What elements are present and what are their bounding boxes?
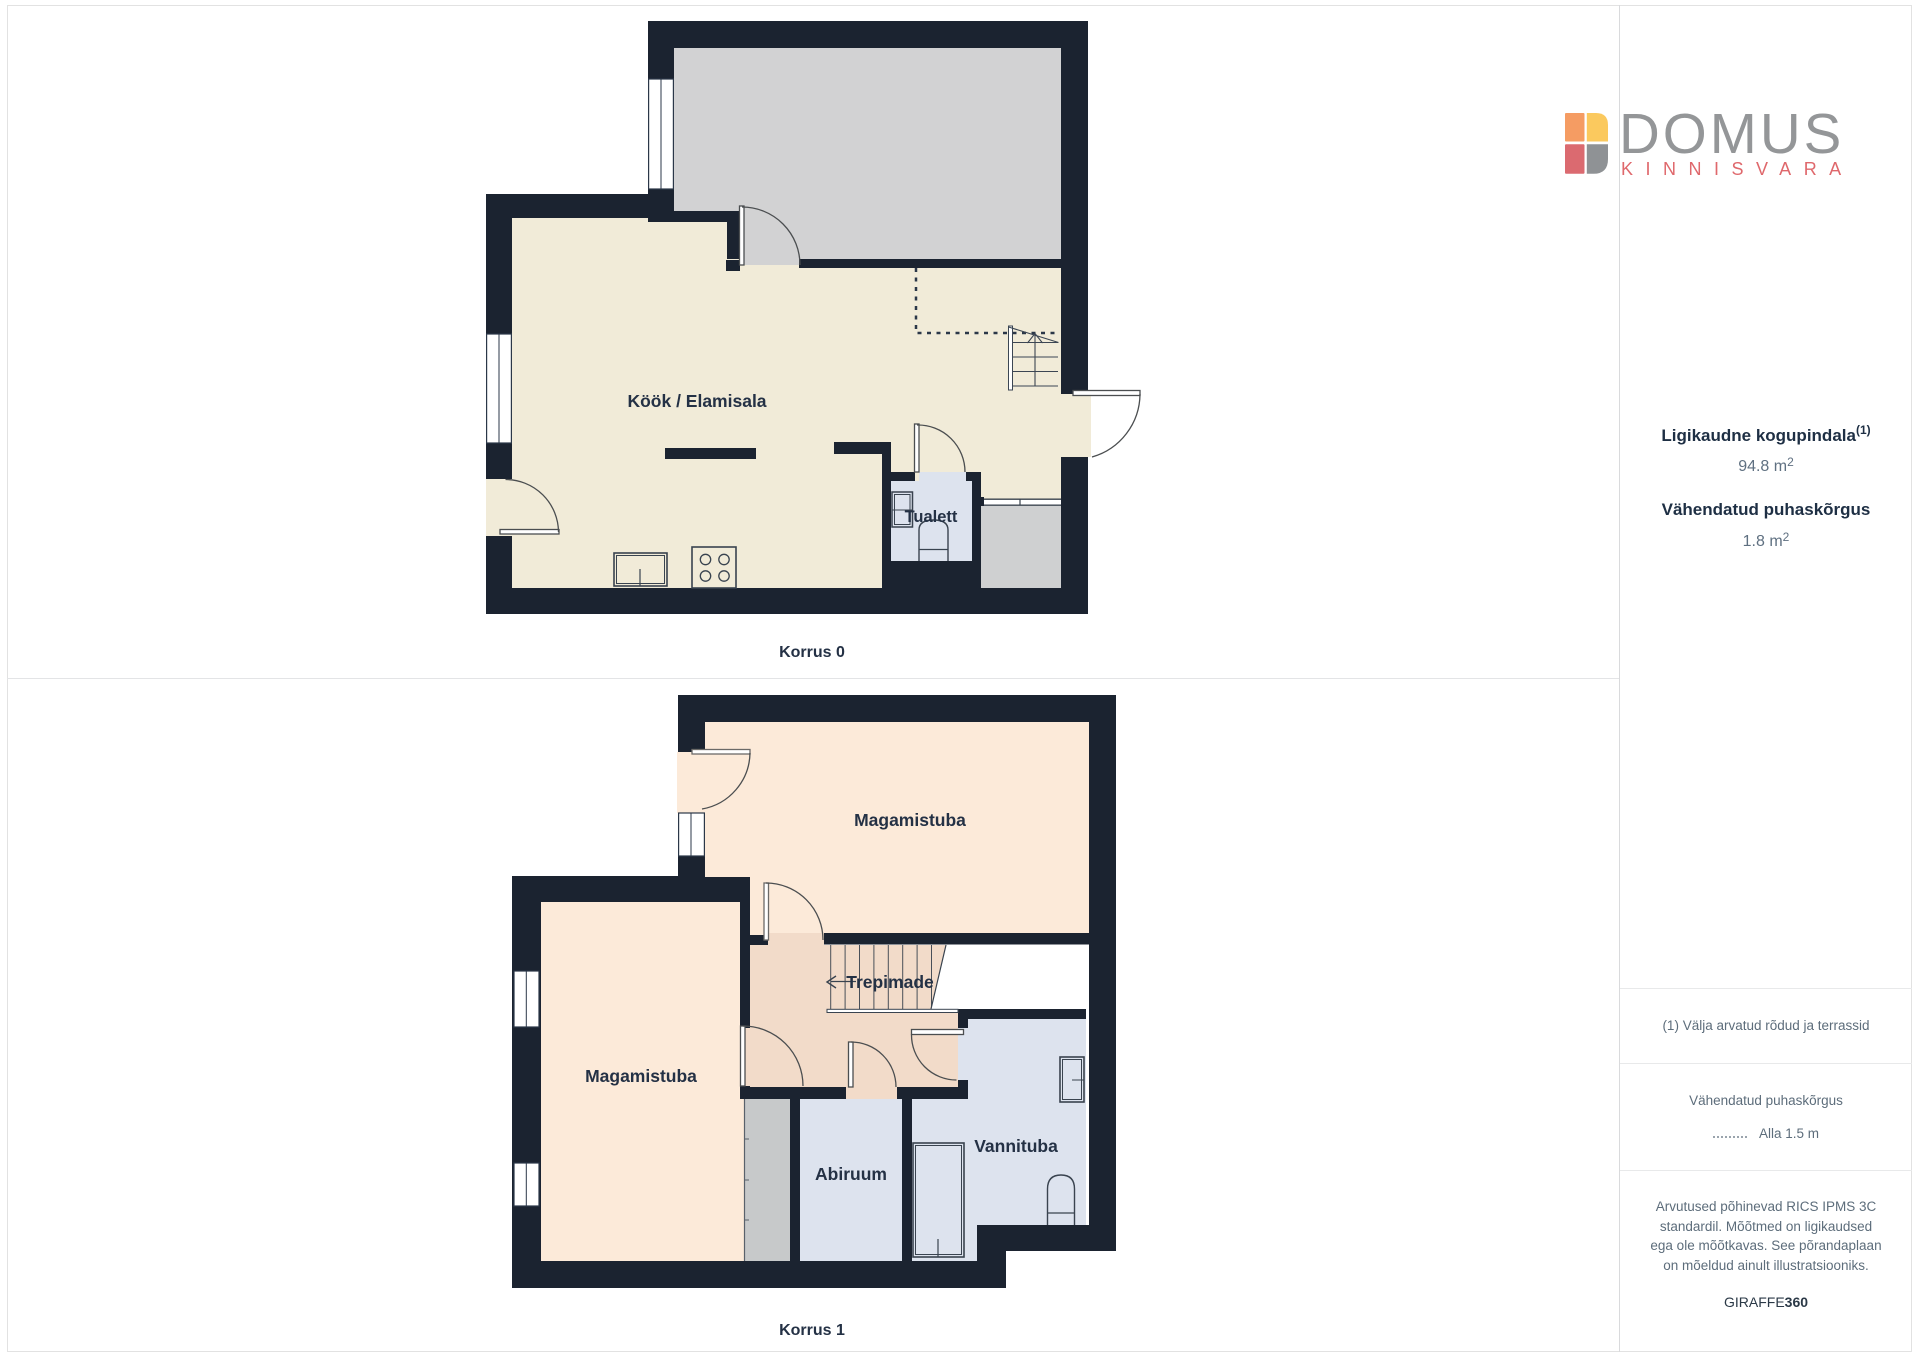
svg-text:Abiruum: Abiruum (815, 1164, 887, 1184)
svg-text:DOMUS: DOMUS (1619, 105, 1844, 165)
svg-text:Köök / Elamisala: Köök / Elamisala (627, 391, 766, 411)
svg-text:Trepimade: Trepimade (846, 972, 934, 992)
svg-text:Vannituba: Vannituba (974, 1136, 1058, 1156)
svg-text:KINNISVARA: KINNISVARA (1621, 159, 1854, 179)
svg-text:Magamistuba: Magamistuba (585, 1066, 697, 1086)
svg-text:Tualett: Tualett (905, 508, 958, 526)
svg-text:Magamistuba: Magamistuba (854, 810, 966, 830)
